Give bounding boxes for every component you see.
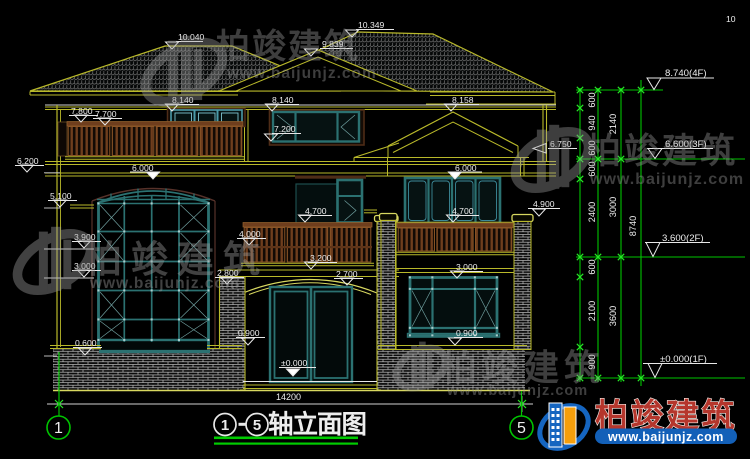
svg-text:柏竣建筑: 柏竣建筑 [586,131,738,171]
svg-text:0.900: 0.900 [456,328,478,338]
svg-text:5: 5 [253,417,261,434]
svg-text:3000: 3000 [608,197,618,217]
svg-text:1: 1 [221,417,229,434]
svg-text:600: 600 [587,92,597,107]
svg-text:www.baijunjz.com: www.baijunjz.com [607,430,724,444]
svg-text:8740: 8740 [628,216,638,236]
svg-text:柏竣建筑: 柏竣建筑 [85,238,269,280]
svg-text:10.349: 10.349 [358,20,385,30]
svg-text:2400: 2400 [587,202,597,222]
svg-text:www.baijunjz.com: www.baijunjz.com [89,275,240,292]
svg-text:4.900: 4.900 [533,199,555,209]
svg-text:14200: 14200 [276,392,301,402]
svg-text:0.900: 0.900 [238,328,260,338]
svg-text:2100: 2100 [587,301,597,321]
svg-text:www.baijunjz.com: www.baijunjz.com [589,171,744,188]
svg-text:0.600: 0.600 [75,338,97,348]
svg-text:3600: 3600 [608,306,618,326]
svg-text:柏竣建筑: 柏竣建筑 [595,397,737,434]
svg-text:940: 940 [587,115,597,130]
svg-text:1: 1 [54,420,63,437]
svg-text:7.200: 7.200 [274,124,296,134]
svg-text:±0.000: ±0.000 [281,358,307,368]
svg-text:8.740(4F): 8.740(4F) [665,68,707,79]
svg-text:柏竣建筑: 柏竣建筑 [216,27,360,66]
svg-text:600: 600 [587,259,597,274]
svg-text:柏竣建筑: 柏竣建筑 [441,347,605,388]
svg-text:www.baijunjz.com: www.baijunjz.com [446,383,588,399]
svg-text:www.baijunjz.com: www.baijunjz.com [226,65,377,82]
svg-text:5: 5 [517,420,526,437]
svg-text:10: 10 [726,14,736,24]
svg-text:轴立面图: 轴立面图 [268,410,366,439]
